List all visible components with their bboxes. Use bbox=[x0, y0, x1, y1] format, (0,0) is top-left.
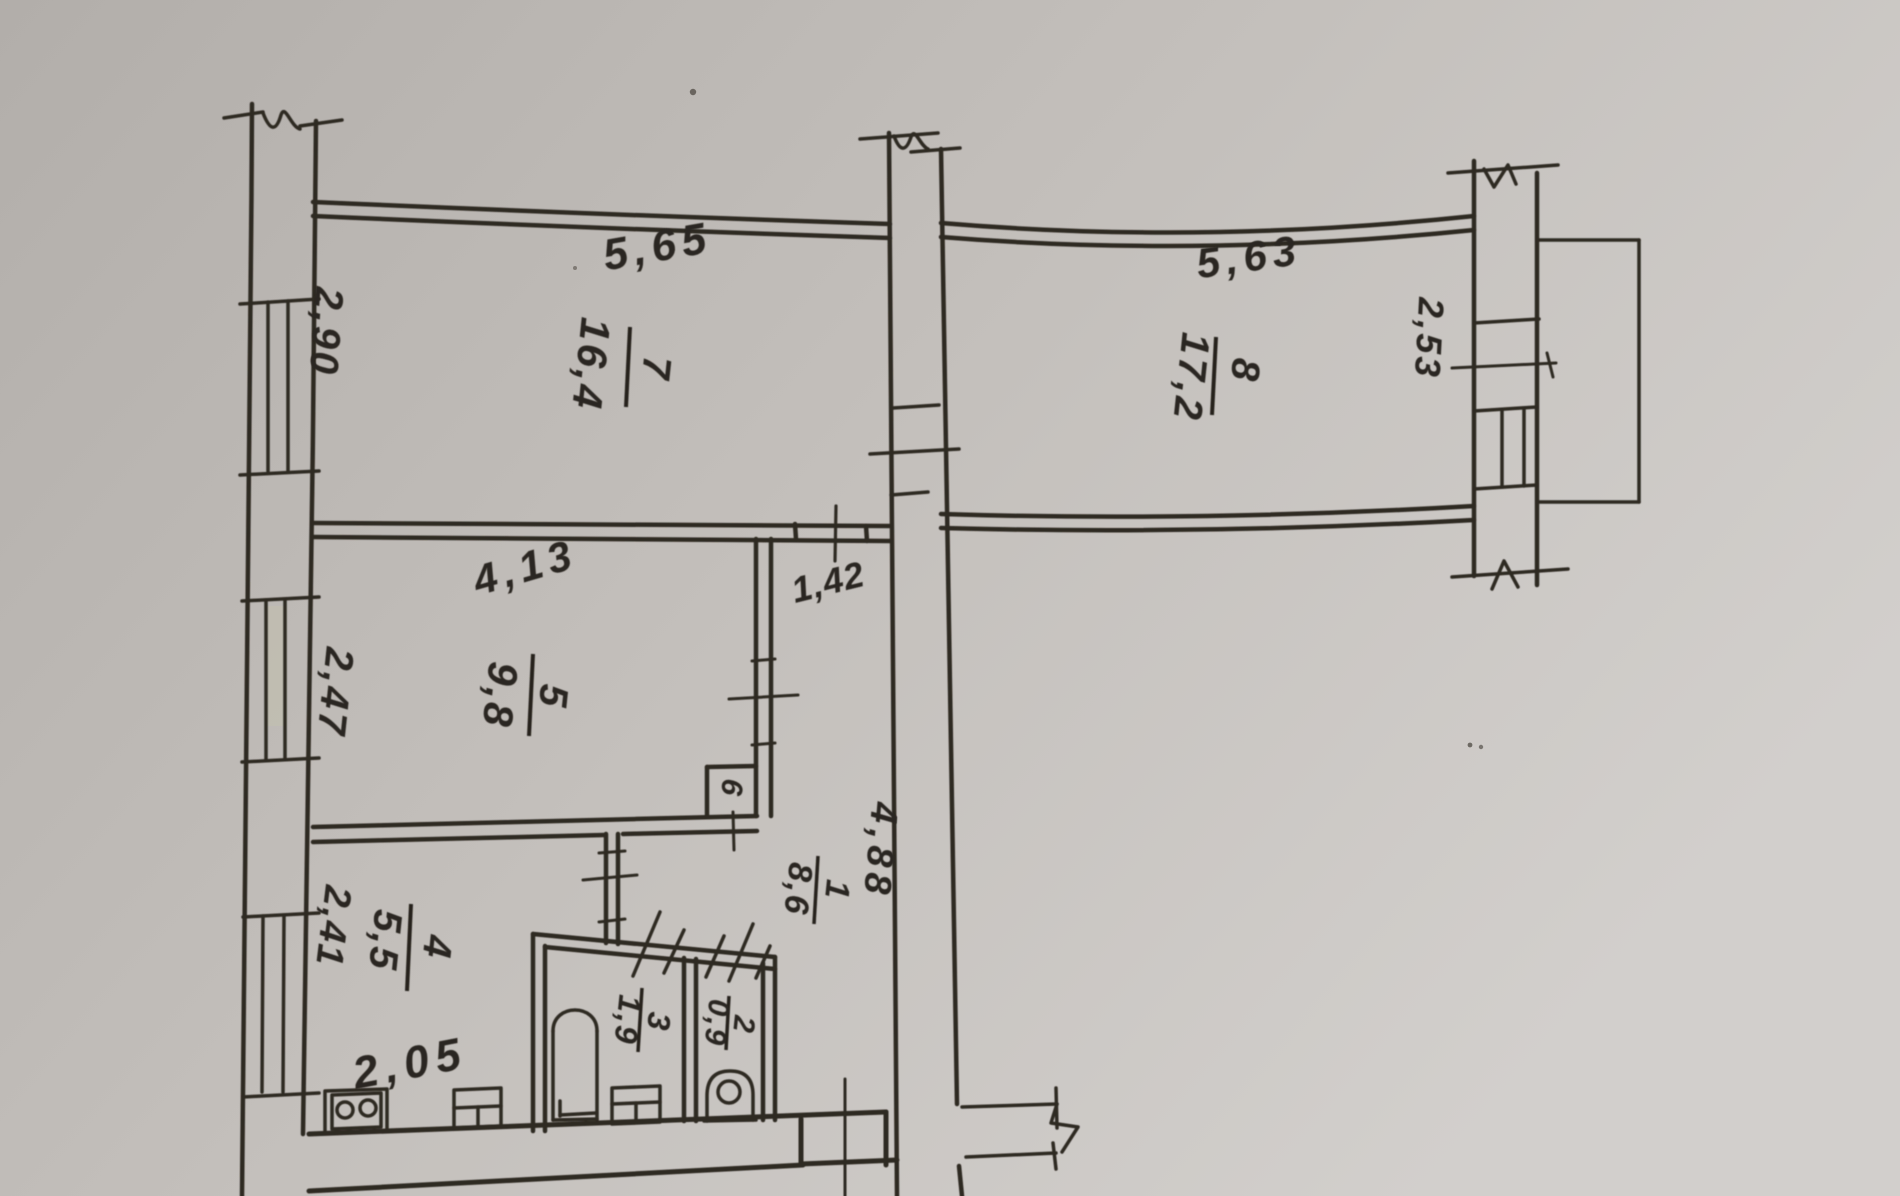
svg-text:17,2: 17,2 bbox=[1164, 330, 1217, 424]
svg-text:2,53: 2,53 bbox=[1407, 296, 1452, 381]
svg-text:1,9: 1,9 bbox=[607, 993, 648, 1047]
svg-text:4: 4 bbox=[414, 932, 460, 962]
svg-text:0,9: 0,9 bbox=[698, 998, 736, 1049]
svg-text:2,90: 2,90 bbox=[301, 285, 351, 379]
svg-text:1: 1 bbox=[817, 878, 857, 903]
svg-text:5,5: 5,5 bbox=[360, 907, 410, 973]
svg-text:9,8: 9,8 bbox=[474, 660, 528, 732]
svg-text:5: 5 bbox=[530, 682, 576, 711]
svg-text:4,88: 4,88 bbox=[855, 799, 905, 901]
svg-text:8,6: 8,6 bbox=[776, 861, 819, 918]
svg-text:8: 8 bbox=[1222, 356, 1268, 385]
svg-text:16,4: 16,4 bbox=[563, 315, 620, 413]
svg-text:7: 7 bbox=[633, 354, 679, 383]
